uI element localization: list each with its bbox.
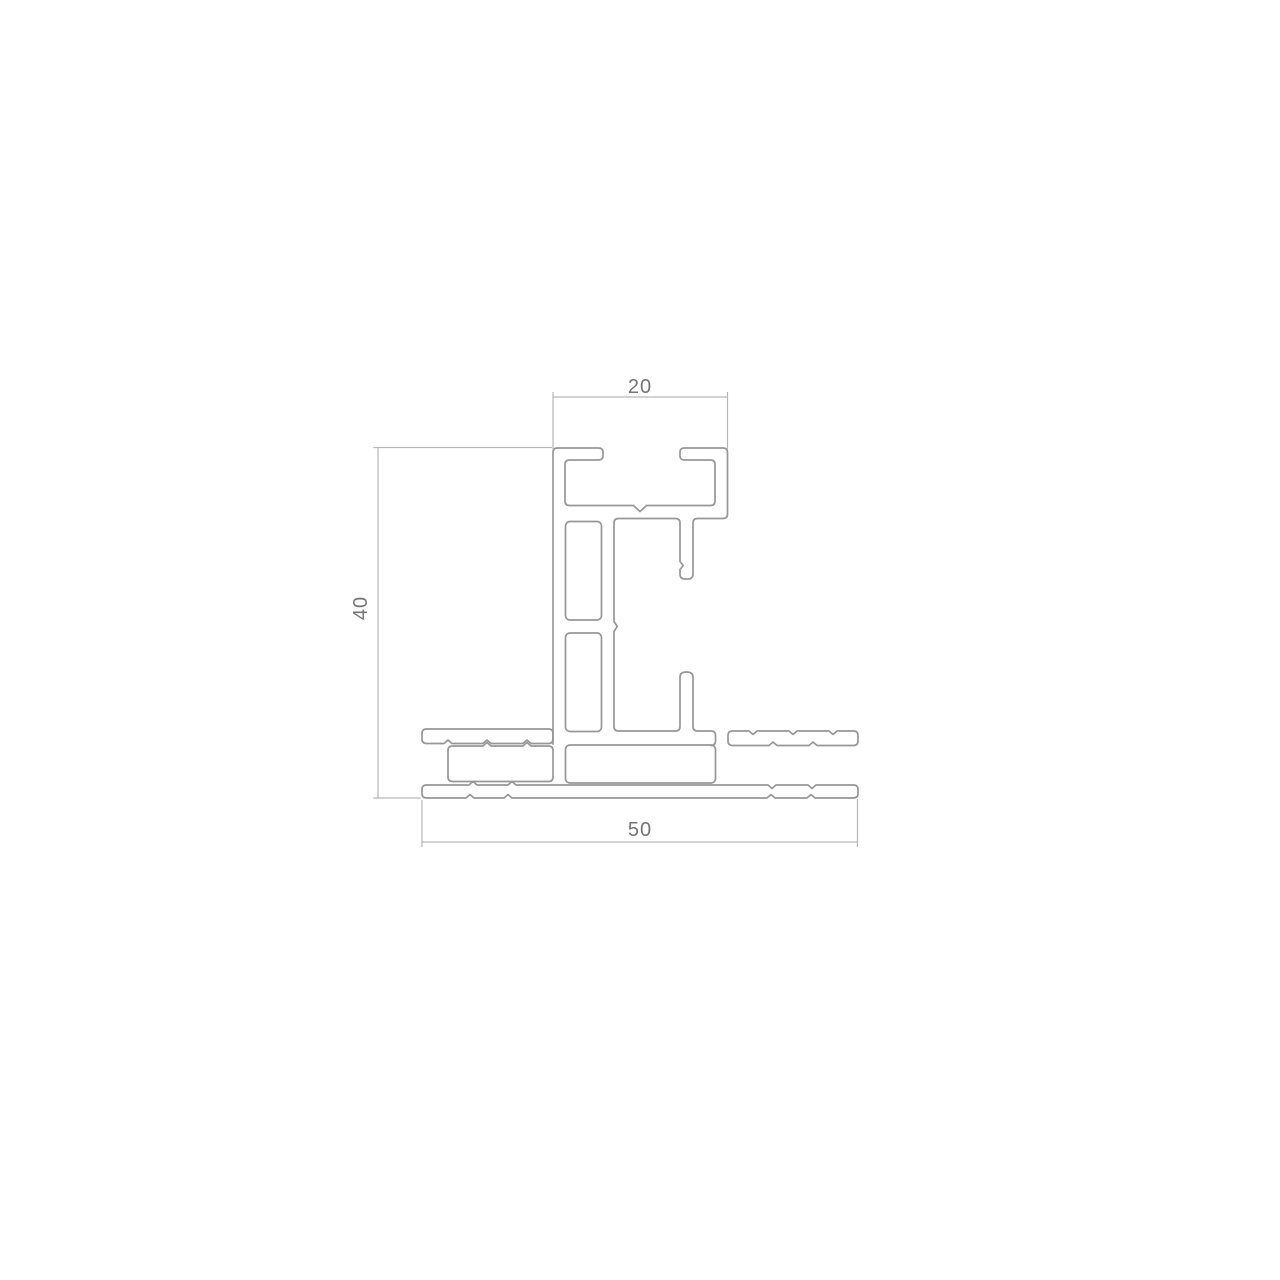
technical-drawing-page: 20 40 50 [0, 0, 1280, 1280]
profile-base-chamber-center [566, 745, 716, 783]
dimension-label-bottom-width: 50 [628, 819, 652, 841]
profile-base-chamber-left [448, 743, 553, 782]
profile-base-flange-right [728, 731, 858, 746]
profile-base-flange-left [422, 729, 553, 744]
profile-geometry [422, 448, 858, 798]
dimension-labels: 20 40 50 [350, 376, 652, 841]
profile-upper-outline [553, 448, 728, 746]
dimension-label-left-height: 40 [350, 596, 372, 620]
dimension-lines [374, 392, 858, 847]
profile-base-bottom-plate [422, 782, 858, 799]
dimension-label-top-width: 20 [628, 376, 652, 398]
profile-wall-chamber-upper [566, 522, 602, 621]
profile-cross-section-drawing: 20 40 50 [0, 0, 1280, 1280]
dimension-width-top [553, 392, 728, 450]
profile-wall-chamber-lower [566, 633, 602, 732]
